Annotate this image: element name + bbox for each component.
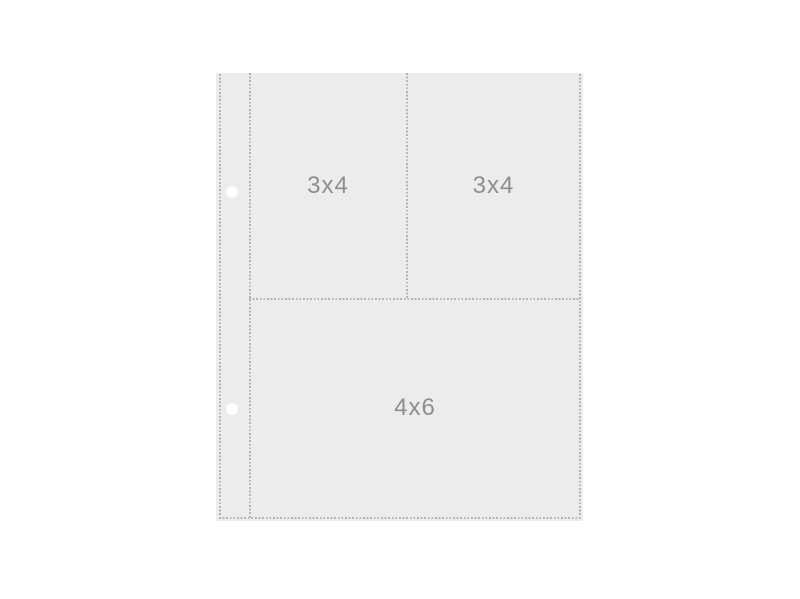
binder-hole-top — [226, 186, 238, 198]
stitch-left-edge — [219, 74, 221, 519]
binder-hole-bottom — [226, 403, 238, 415]
product-image-canvas: 3x4 3x4 4x6 — [0, 0, 800, 599]
pocket-page-sheet: 3x4 3x4 4x6 — [216, 73, 583, 521]
pocket-size-label: 3x4 — [307, 172, 349, 200]
pocket-size-label: 3x4 — [473, 172, 515, 200]
pocket-3x4-right: 3x4 — [407, 73, 580, 298]
pocket-3x4-left: 3x4 — [250, 73, 406, 298]
pocket-4x6: 4x6 — [250, 299, 580, 517]
stitch-bottom-edge — [219, 517, 580, 519]
pocket-size-label: 4x6 — [394, 394, 436, 422]
